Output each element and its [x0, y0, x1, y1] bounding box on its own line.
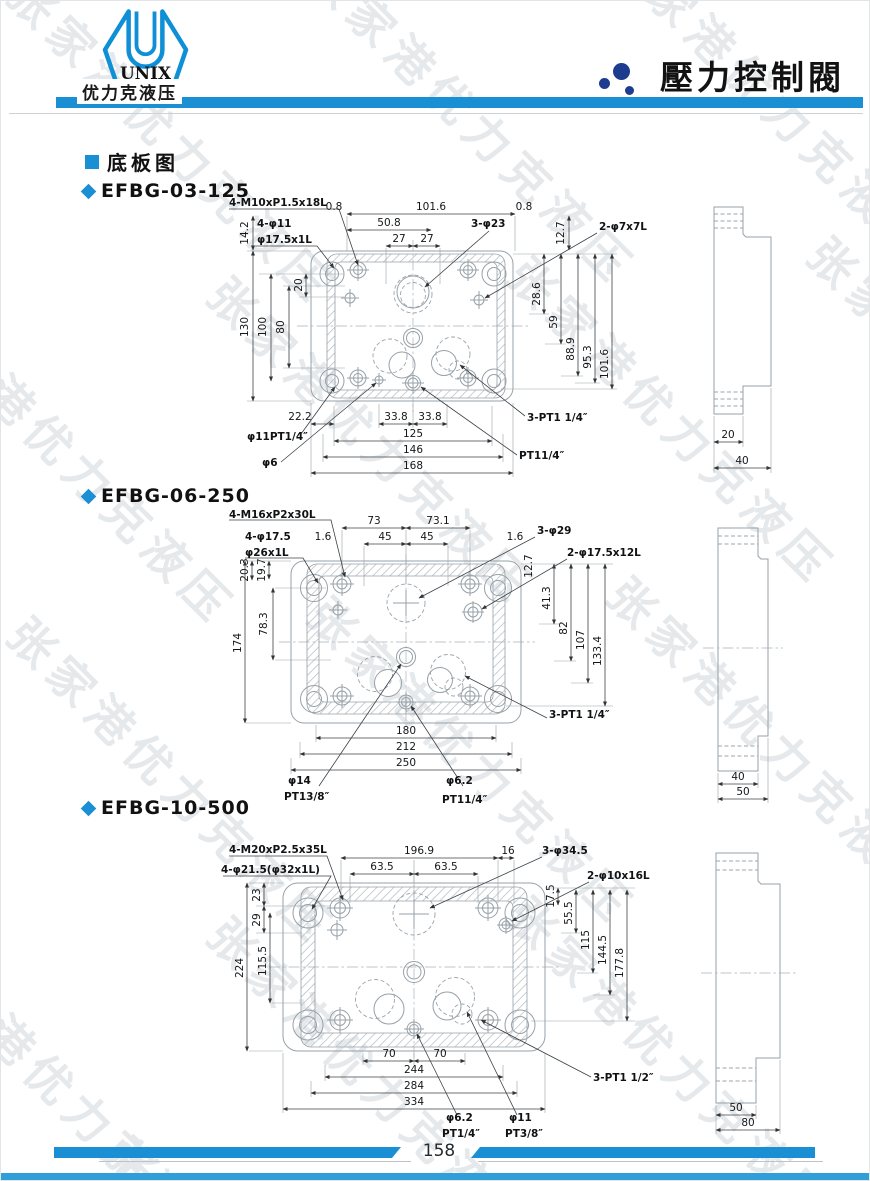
footer-bar-shadow: [99, 1161, 411, 1162]
model-label: EFBG-06-250: [101, 485, 250, 507]
dim-label: 70: [382, 1048, 395, 1060]
callout-label: 2-φ10x16L: [587, 870, 650, 882]
dim-label: 130: [239, 317, 251, 337]
dim-label: 177.8: [614, 948, 626, 978]
dim-label: 146: [403, 444, 423, 456]
bottom-edge-strip: [1, 1173, 870, 1181]
callout-label: 4-φ11: [257, 218, 292, 230]
dim-label: 168: [403, 460, 423, 472]
dot-icon: [625, 86, 634, 95]
header-rule: [9, 113, 863, 114]
dim-label: 244: [404, 1064, 424, 1076]
callout-label: PT11/4″: [442, 794, 488, 806]
dim-label: 50: [736, 786, 749, 798]
dim-label: 73.1: [426, 515, 449, 527]
dim-label: 284: [404, 1080, 424, 1092]
dim-label: 80: [275, 320, 287, 333]
dim-label: 27: [420, 233, 433, 245]
callout-label: PT13/8″: [284, 791, 330, 803]
callout-label: φ14: [288, 775, 311, 787]
side-view: 50 80: [701, 853, 796, 1134]
plan-view: [269, 871, 561, 1061]
dim-label: 33.8: [384, 411, 407, 423]
dim-label: 14.2: [239, 221, 251, 244]
callout-label: PT11/4″: [519, 450, 565, 462]
callout-label: φ11PT1/4″: [247, 431, 308, 443]
section-title-label: 底板图: [107, 147, 179, 176]
dim-label: 41.3: [541, 586, 553, 609]
footer-bar-left: [54, 1147, 401, 1158]
dim-label: 70: [433, 1048, 446, 1060]
dim-label: 29: [251, 913, 263, 926]
dim-label: 0.8: [516, 201, 533, 213]
callout-label: 4-φ17.5: [245, 531, 291, 543]
footer-bar-right: [471, 1147, 815, 1158]
dim-label: 16: [501, 845, 515, 857]
callout-label: φ26x1L: [245, 547, 289, 559]
callout-label: 4-M16xP2x30L: [229, 509, 316, 521]
dim-label: 224: [234, 958, 246, 978]
dim-label: 180: [396, 725, 416, 737]
dim-label: 27: [392, 233, 405, 245]
callout-label: φ11: [509, 1112, 532, 1124]
plan-view: [279, 554, 535, 732]
dim-label: 45: [420, 531, 433, 543]
dim-label: 78.3: [258, 612, 270, 635]
dim-label: 212: [396, 741, 416, 753]
square-bullet-icon: [85, 155, 99, 169]
callout-label: φ17.5x1L: [257, 234, 312, 246]
callout-label: φ6.2: [446, 775, 473, 787]
page-title: 壓力控制閥: [660, 51, 845, 99]
logo-u-inner: [137, 12, 155, 55]
dim-label: 115: [580, 930, 592, 950]
dim-label: 22.2: [288, 411, 311, 423]
side-view: 20 40: [714, 207, 771, 473]
dim-label: 82: [558, 621, 570, 634]
callout-label: 2-φ17.5x12L: [567, 547, 641, 559]
dot-icon: [613, 63, 630, 80]
callout-label: 3-PT1 1/4″: [527, 412, 588, 424]
dim-label: 125: [403, 428, 423, 440]
callout-label: φ6: [262, 457, 278, 469]
dim-label: 115.5: [257, 946, 269, 976]
dim-label: 334: [404, 1096, 424, 1108]
drawing-efbg-03-125: 0.8 101.6 0.8 50.8 27 27 14.2 12.7 130 1…: [1, 194, 870, 494]
dim-label: 88.9: [565, 337, 577, 360]
dim-label: 63.5: [434, 861, 457, 873]
dim-label: 40: [731, 771, 744, 783]
dim-label: 55.5: [563, 901, 575, 924]
callout-label: 3-φ29: [537, 525, 572, 537]
dim-label: 95.3: [582, 345, 594, 368]
dim-label: 63.5: [370, 861, 393, 873]
callout-label: φ6.2: [446, 1112, 473, 1124]
dim-label: 107: [575, 630, 587, 650]
dim-label: 250: [396, 757, 416, 769]
dim-label: 73: [367, 515, 380, 527]
dim-label: 1.6: [315, 531, 332, 543]
section-title: 底板图: [85, 147, 179, 176]
callout-label: 3-φ34.5: [542, 845, 588, 857]
model-label: EFBG-10-500: [101, 797, 250, 819]
dim-label: 28.6: [531, 282, 543, 306]
dim-label: 174: [232, 633, 244, 653]
callout-label: 3-φ23: [471, 218, 506, 230]
dim-label: 144.5: [597, 935, 609, 965]
catalog-page: 张家港优力克液压 张家港优力克液压 张家港优力克液压 张家港优力克液压 张家港优…: [0, 0, 870, 1181]
footer-bar-shadow: [478, 1161, 823, 1162]
callout-label: PT3/8″: [505, 1128, 543, 1140]
model-heading-efbg-06-250: EFBG-06-250: [83, 485, 250, 507]
drawing-efbg-10-500: 196.9 63.5 63.5 16 17.5 23 29 224 115.5 …: [1, 813, 870, 1153]
dim-label: 20: [721, 429, 734, 441]
diamond-bullet-icon: [81, 800, 97, 816]
dim-label: 196.9: [404, 845, 434, 857]
dim-label: 12.7: [523, 554, 535, 577]
dim-label: 1.6: [507, 531, 524, 543]
model-heading-efbg-10-500: EFBG-10-500: [83, 797, 250, 819]
dim-label: 23: [251, 888, 263, 901]
drawing-efbg-06-250: 1.6 73 73.1 45 45 1.6 12.7 20.3 19.7 174…: [1, 506, 870, 806]
diamond-bullet-icon: [81, 488, 97, 504]
dim-label: 133.4: [592, 636, 604, 666]
callout-label: 4-φ21.5(φ32x1L): [221, 864, 320, 876]
dim-label: 80: [741, 1117, 754, 1129]
dim-label: 12.7: [555, 221, 567, 244]
dim-label: 50: [729, 1102, 742, 1114]
dim-label: 101.6: [599, 349, 611, 379]
brand-name: 优力克液压: [77, 79, 182, 104]
dim-label: 45: [378, 531, 391, 543]
dim-label: 20: [293, 278, 305, 291]
dim-label: 50.8: [377, 217, 400, 229]
dimensions: 0.8 101.6 0.8 50.8 27 27 14.2 12.7 130 1…: [229, 197, 647, 477]
dot-icon: [599, 78, 610, 89]
diamond-bullet-icon: [81, 183, 97, 199]
model-heading-efbg-03-125: EFBG-03-125: [83, 180, 250, 202]
dim-label: 101.6: [416, 201, 446, 213]
page-number: 158: [406, 1141, 472, 1161]
callout-label: 2-φ7x7L: [599, 221, 647, 233]
callout-label: 3-PT1 1/4″: [549, 709, 610, 721]
dim-label: 59: [548, 315, 560, 328]
callout-label: 4-M20xP2.5x35L: [229, 844, 327, 856]
side-view: 40 50: [703, 528, 783, 803]
dim-label: 19.7: [256, 558, 268, 581]
callout-label: 3-PT1 1/2″: [593, 1072, 654, 1084]
dim-label: 33.8: [418, 411, 441, 423]
dim-label: 40: [735, 455, 748, 467]
dim-label: 100: [257, 317, 269, 337]
model-label: EFBG-03-125: [101, 180, 250, 202]
callout-label: PT1/4″: [442, 1128, 480, 1140]
